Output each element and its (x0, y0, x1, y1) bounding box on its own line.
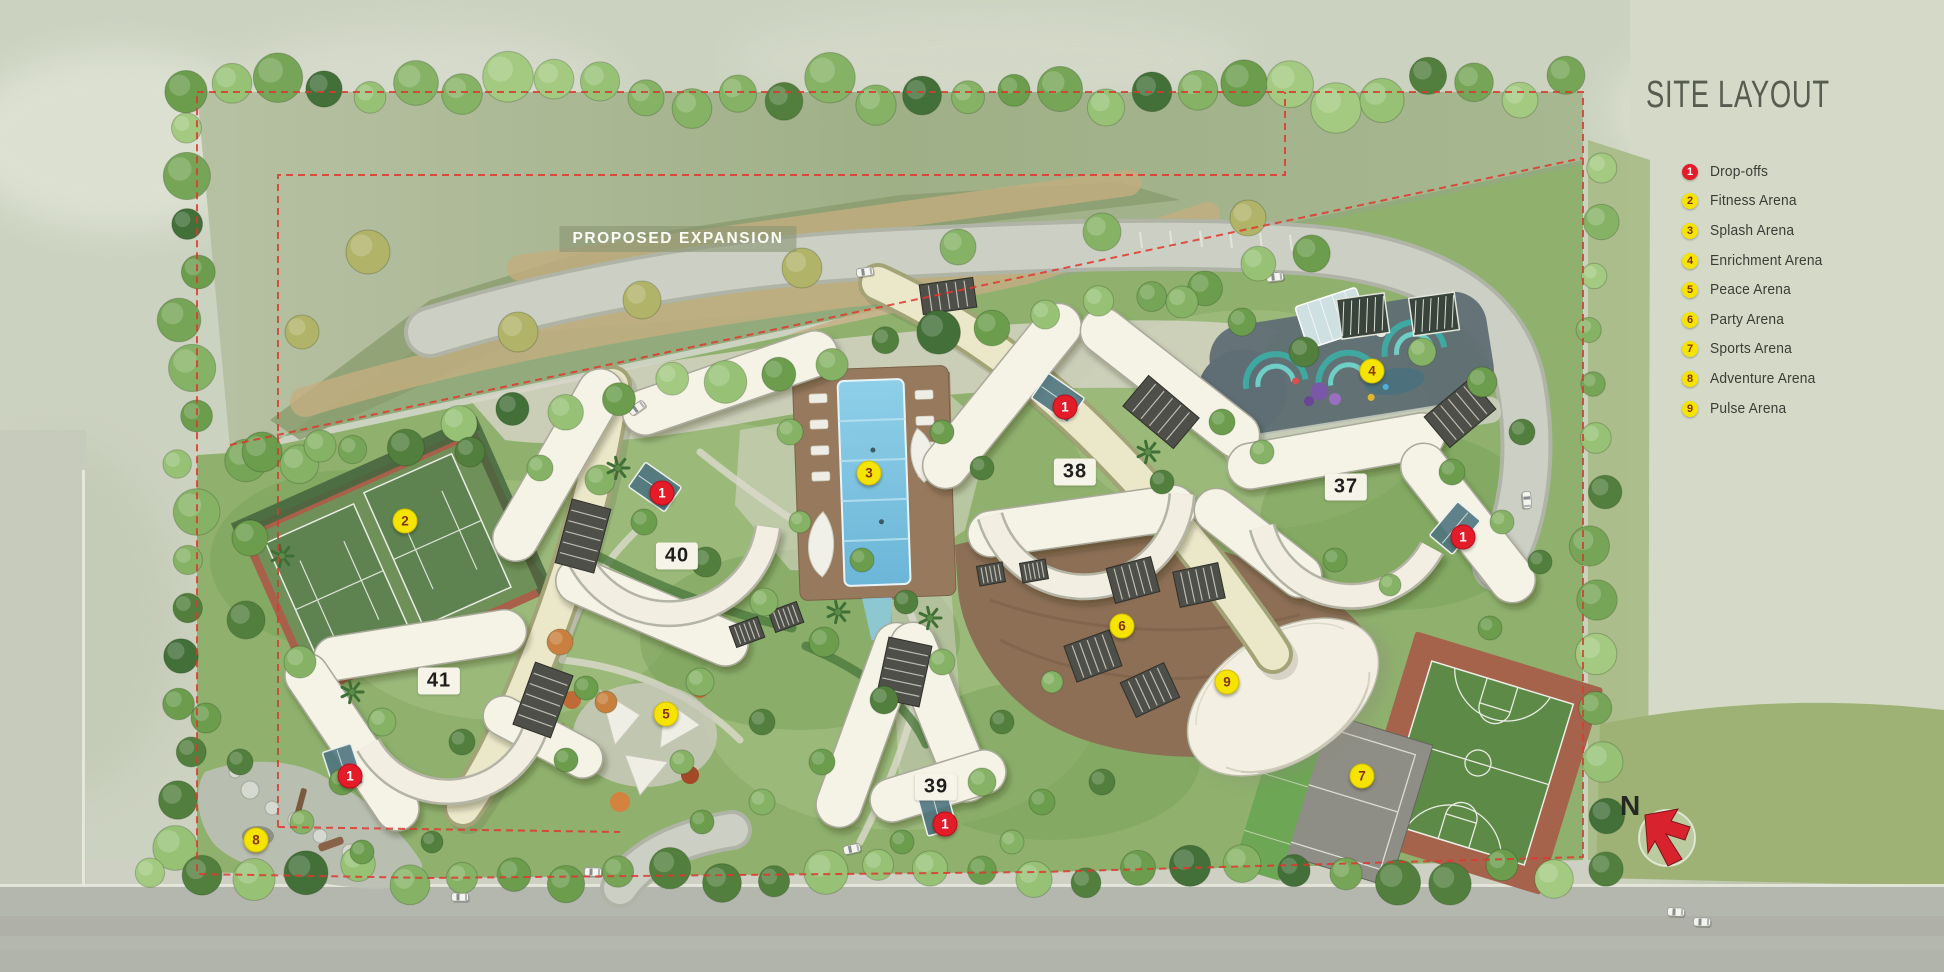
legend-marker-5: 5 (1682, 282, 1698, 298)
legend-marker-6: 6 (1682, 312, 1698, 328)
peace-arena-marker: 5 (654, 702, 679, 727)
proposed-expansion-label: PROPOSED EXPANSION (559, 226, 796, 252)
legend-marker-4: 4 (1682, 253, 1698, 269)
dropoff-marker-3: 1 (338, 764, 363, 789)
legend-title: SITE LAYOUT (1646, 74, 1848, 117)
building-41-label: 41 (418, 668, 460, 695)
north-arrow (1639, 809, 1695, 866)
legend-item-enrichment-arena: 4 Enrichment Arena (1682, 246, 1926, 276)
building-39-label: 39 (915, 774, 957, 801)
legend-item-party-arena: 6 Party Arena (1682, 305, 1926, 335)
north-label: N (1620, 790, 1640, 822)
legend-item-peace-arena: 5 Peace Arena (1682, 275, 1926, 305)
legend-marker-3: 3 (1682, 223, 1698, 239)
pulse-arena-marker: 9 (1215, 670, 1240, 695)
legend-marker-2: 2 (1682, 193, 1698, 209)
legend-marker-8: 8 (1682, 371, 1698, 387)
dropoff-marker-4: 1 (933, 812, 958, 837)
legend-item-drop-offs: 1 Drop-offs (1682, 157, 1926, 187)
enrichment-arena-marker: 4 (1360, 359, 1385, 384)
legend-item-pulse-arena: 9 Pulse Arena (1682, 394, 1926, 424)
site-layout-plan: PROPOSED EXPANSION 40 41 38 37 39 1 1 1 … (0, 0, 1944, 972)
dropoff-marker-2: 1 (1053, 395, 1078, 420)
sports-arena-marker: 7 (1350, 764, 1375, 789)
legend-item-fitness-arena: 2 Fitness Arena (1682, 187, 1926, 217)
legend-marker-1: 1 (1682, 164, 1698, 180)
building-37-label: 37 (1325, 474, 1367, 501)
building-38-label: 38 (1054, 459, 1096, 486)
party-arena-marker: 6 (1110, 614, 1135, 639)
legend-panel: SITE LAYOUT 1 Drop-offs 2 Fitness Arena … (1646, 74, 1926, 423)
fitness-arena-marker: 2 (393, 509, 418, 534)
legend-item-splash-arena: 3 Splash Arena (1682, 216, 1926, 246)
adventure-arena-marker: 8 (244, 828, 269, 853)
dropoff-marker-5: 1 (1451, 525, 1476, 550)
dropoff-marker-1: 1 (650, 481, 675, 506)
legend-marker-9: 9 (1682, 401, 1698, 417)
legend-items: 1 Drop-offs 2 Fitness Arena 3 Splash Are… (1646, 157, 1926, 423)
building-40-label: 40 (656, 543, 698, 570)
legend-marker-7: 7 (1682, 341, 1698, 357)
legend-item-sports-arena: 7 Sports Arena (1682, 335, 1926, 365)
splash-arena-marker: 3 (857, 461, 882, 486)
legend-item-adventure-arena: 8 Adventure Arena (1682, 364, 1926, 394)
